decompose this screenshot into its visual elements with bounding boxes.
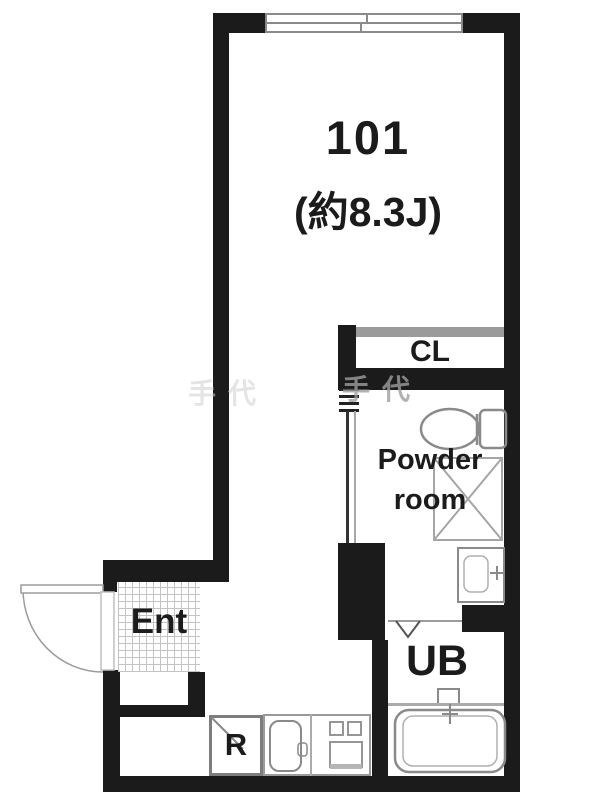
toilet-icon xyxy=(421,409,506,449)
entrance-label: Ent xyxy=(118,603,200,642)
unit-size-label: (約8.3J) xyxy=(248,190,488,235)
stove-icon xyxy=(330,722,362,769)
unit-bath-folding-door-icon xyxy=(388,621,462,637)
unit-number-label: 101 xyxy=(268,112,468,164)
unit-bath-label: UB xyxy=(388,638,486,685)
watermark-text-left: 手代 xyxy=(188,372,268,412)
powder-room-label-line1: Powder xyxy=(356,445,504,477)
washbasin-icon xyxy=(458,548,504,602)
powder-room-label-line2: room xyxy=(356,485,504,517)
watermark-text-right: 手代 xyxy=(342,368,422,408)
floor-plan: 101 (約8.3J) CL Powder room Ent UB R 手代 手… xyxy=(0,0,600,800)
entry-door-swing-icon xyxy=(21,585,114,672)
powder-room-label: Powder room xyxy=(356,445,504,517)
bathtub-icon xyxy=(395,689,505,772)
kitchen-sink-icon xyxy=(270,721,307,771)
refrigerator-label: R xyxy=(209,728,263,762)
closet-label: CL xyxy=(356,335,504,368)
